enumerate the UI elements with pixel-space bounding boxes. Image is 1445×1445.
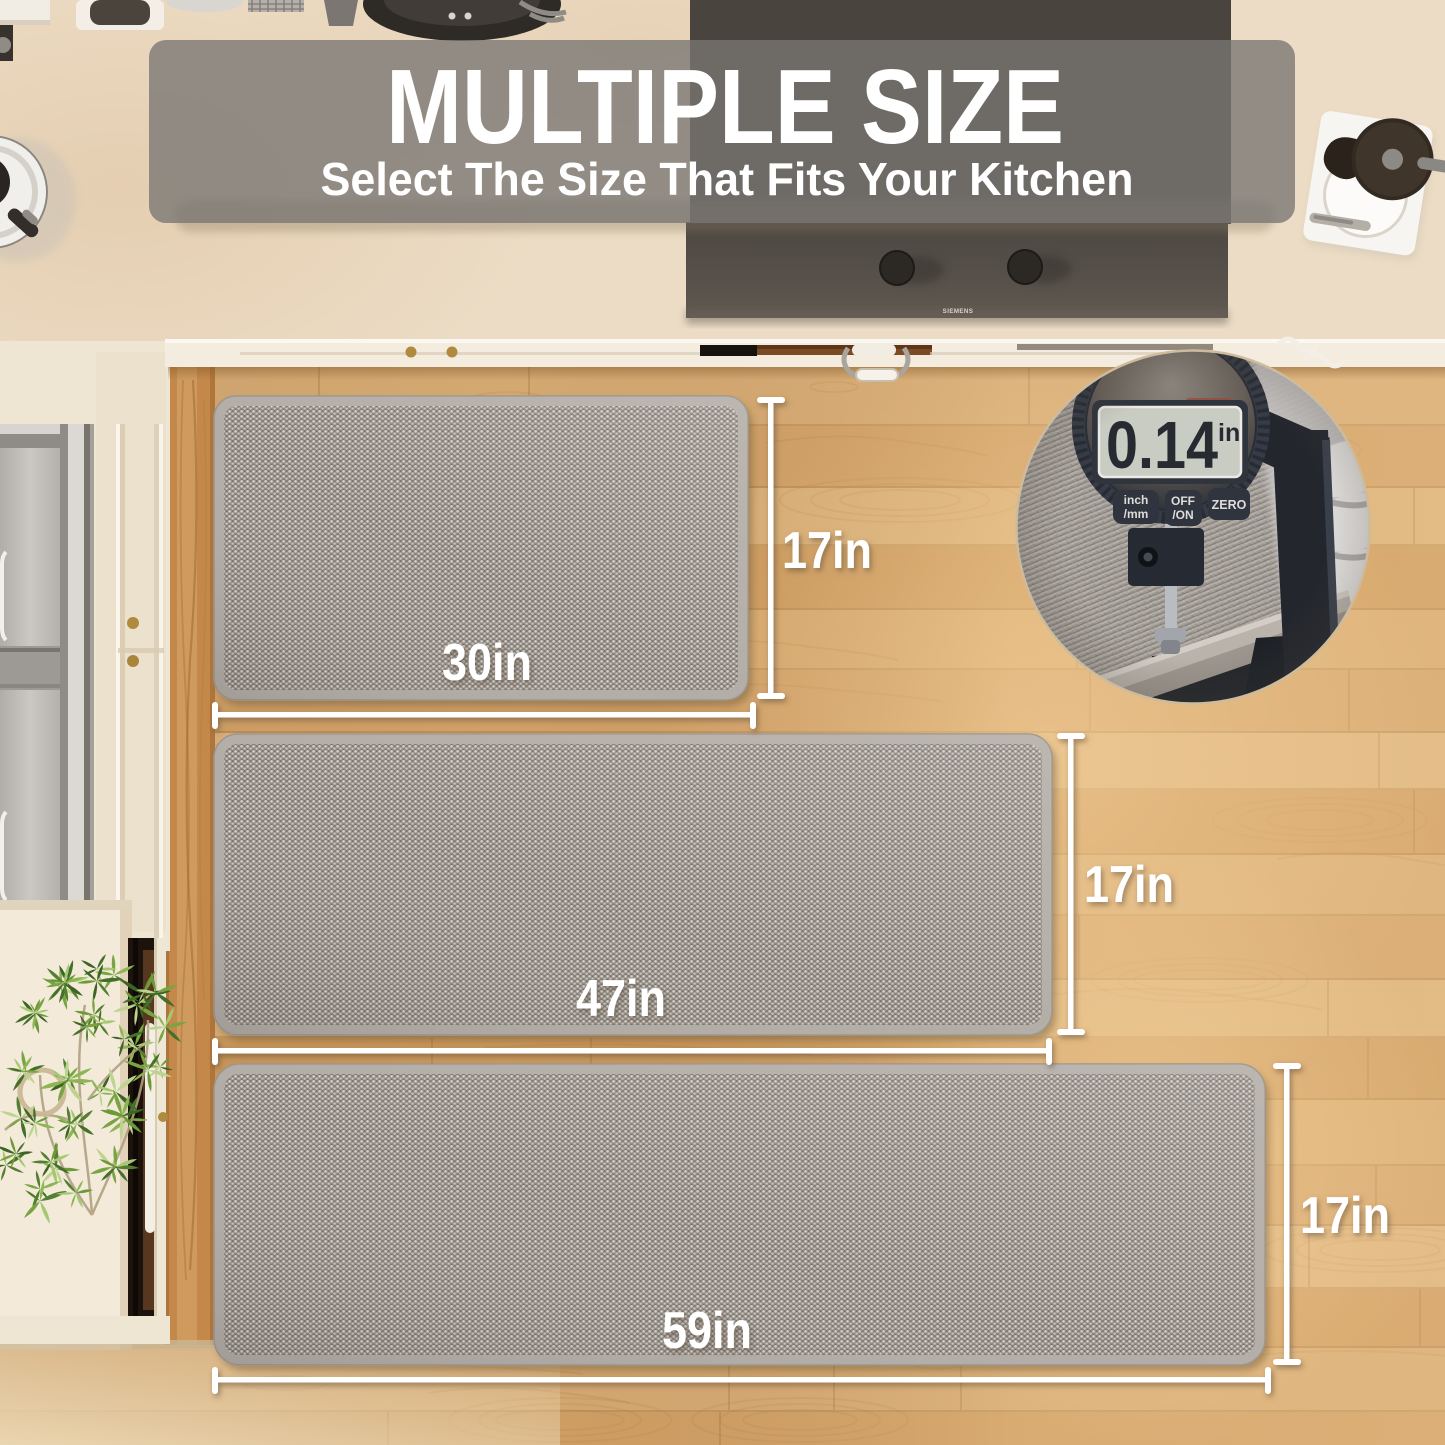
svg-text:17in: 17in [782,522,872,580]
svg-text:MULTIPLE SIZE: MULTIPLE SIZE [386,48,1064,166]
svg-text:17in: 17in [1084,856,1174,914]
svg-text:Select The Size That Fits Your: Select The Size That Fits Your Kitchen [321,153,1134,205]
svg-text:59in: 59in [662,1302,752,1360]
svg-text:17in: 17in [1300,1187,1390,1245]
svg-text:30in: 30in [442,634,532,692]
svg-text:47in: 47in [576,970,666,1028]
svg-text:SIEMENS: SIEMENS [943,308,974,315]
